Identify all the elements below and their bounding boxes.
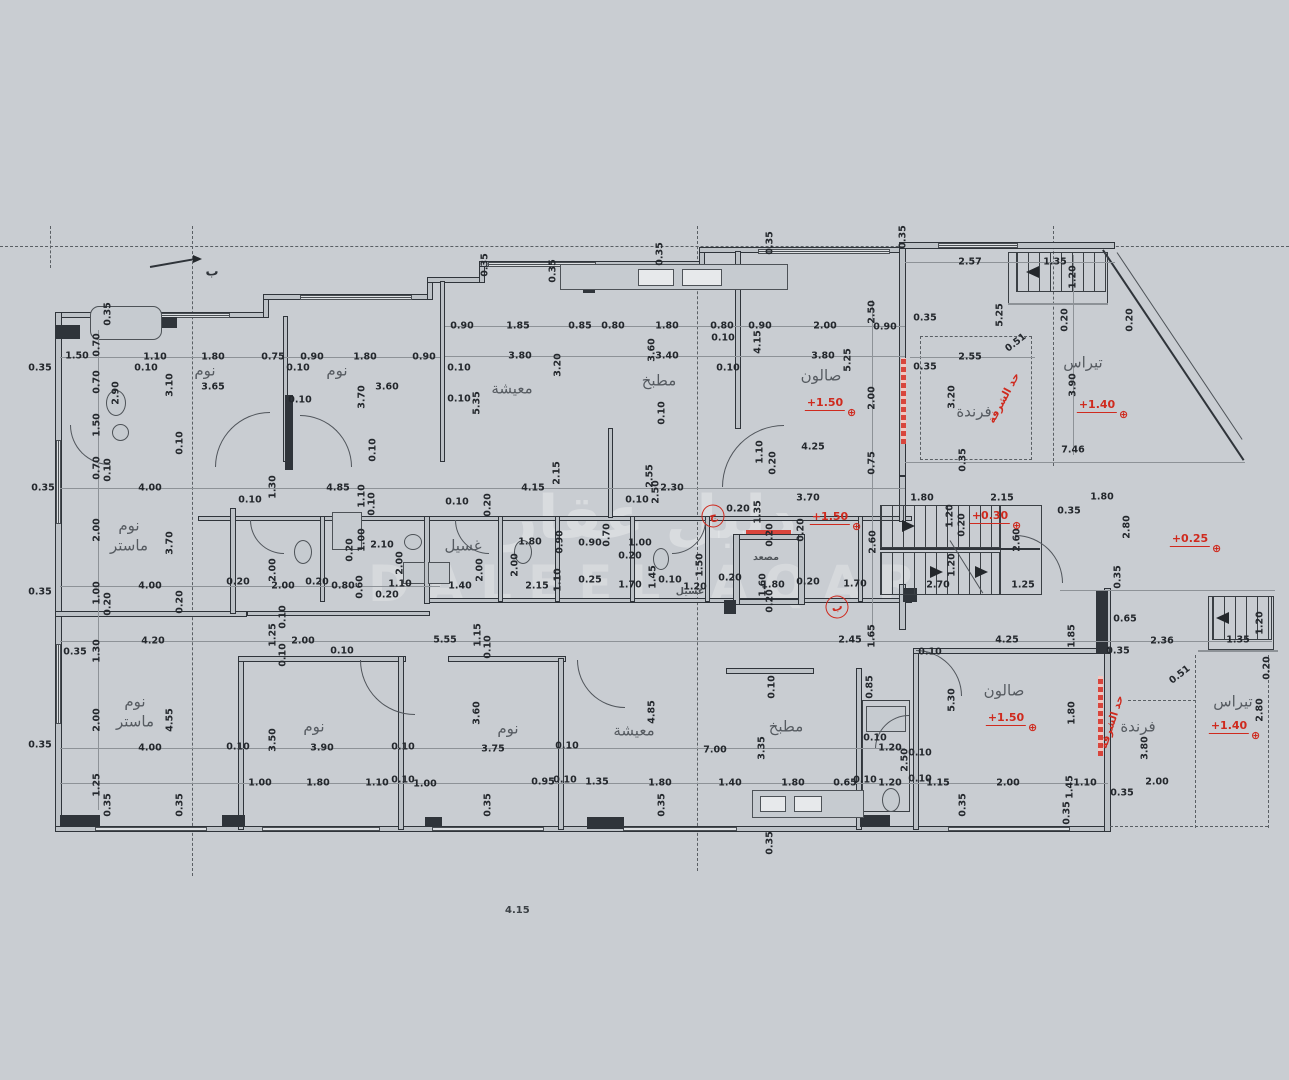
- dimension-label: 0.10: [716, 363, 739, 373]
- window: [758, 249, 890, 254]
- dimension-label: 5.35: [472, 391, 482, 414]
- floor-plan-canvas: دليل عقار DALEEL AQAR ب: [0, 0, 1289, 1080]
- toilet: [294, 540, 312, 564]
- floor-plan: دليل عقار DALEEL AQAR ب: [0, 0, 1289, 1080]
- grid-line: [697, 226, 698, 871]
- dimension-label: 0.10: [391, 775, 414, 785]
- dimension-label: 0.25: [578, 575, 601, 585]
- dimension-label: 0.35: [958, 793, 968, 816]
- dimension-label: 0.35: [655, 242, 665, 265]
- dimension-label: 2.10: [370, 540, 393, 550]
- room-label: نوم ماستر: [116, 693, 154, 732]
- dimension-label: 4.00: [138, 581, 161, 591]
- dimension-label: 0.10: [103, 458, 113, 481]
- grid-line: [1128, 700, 1196, 701]
- wall: [247, 611, 430, 616]
- dimension-label: 0.20: [765, 523, 775, 546]
- dimension-label: 7.00: [703, 745, 726, 755]
- dimension-label: 1.20: [1255, 611, 1265, 634]
- dimension-label: 0.20: [768, 451, 778, 474]
- dimension-label: 0.70: [92, 456, 102, 479]
- dimension-label: 0.10: [175, 431, 185, 454]
- dimension-label: 0.20: [796, 577, 819, 587]
- wall: [913, 648, 1110, 654]
- dimension-line: [1060, 590, 1275, 591]
- basin: [404, 534, 422, 550]
- dimension-label: 1.80: [910, 493, 933, 503]
- column-block: [860, 815, 890, 827]
- dimension-label: 1.35: [1226, 635, 1249, 645]
- dimension-label: 0.10: [226, 742, 249, 752]
- dimension-label: 4.00: [138, 483, 161, 493]
- dimension-label: 0.35: [103, 793, 113, 816]
- dimension-label: 2.50: [867, 300, 877, 323]
- dimension-label: 0.75: [261, 352, 284, 362]
- dimension-label: 4.25: [995, 635, 1018, 645]
- window: [262, 827, 380, 831]
- dimension-label: 1.20: [878, 743, 901, 753]
- dimension-label: 2.60: [868, 530, 878, 553]
- dimension-label: 1.10: [365, 778, 388, 788]
- dimension-label: 1.80: [1090, 492, 1113, 502]
- dimension-label: 0.10: [286, 363, 309, 373]
- wall: [320, 516, 325, 602]
- window: [432, 827, 544, 831]
- dimension-label: 0.35: [958, 448, 968, 471]
- wall: [448, 656, 566, 662]
- dimension-label: 2.15: [552, 461, 562, 484]
- dimension-label: 0.20: [726, 504, 749, 514]
- kitchen-sink: [760, 796, 786, 812]
- dimension-label: 0.35: [548, 259, 558, 282]
- elevation-marker: +1.50: [805, 397, 845, 411]
- dimension-label: 0.35: [1057, 506, 1080, 516]
- scale-note: 4.15: [505, 905, 530, 916]
- dimension-label: 0.10: [657, 401, 667, 424]
- room-label: صالون: [984, 681, 1025, 701]
- dimension-label: 7.46: [1061, 445, 1084, 455]
- dimension-label: 0.35: [483, 793, 493, 816]
- dimension-label: 0.35: [28, 363, 51, 373]
- dimension-label: 2.00: [510, 553, 520, 576]
- dimension-label: 0.80: [601, 321, 624, 331]
- wall: [55, 611, 247, 617]
- dimension-label: 2.00: [92, 518, 102, 541]
- dimension-label: 1.10: [143, 352, 166, 362]
- elevation-marker: +1.50: [810, 511, 850, 525]
- elevation-marker: +0.25: [1170, 533, 1210, 547]
- dimension-label: 3.10: [165, 373, 175, 396]
- dimension-label: 3.70: [357, 385, 367, 408]
- dimension-label: 2.57: [958, 257, 981, 267]
- dimension-label: 1.80: [353, 352, 376, 362]
- dimension-label: 1.40: [718, 778, 741, 788]
- dimension-label: 1.65: [867, 624, 877, 647]
- dimension-label: 2.80: [1255, 698, 1265, 721]
- dimension-label: 1.80: [655, 321, 678, 331]
- wall: [427, 277, 485, 283]
- dimension-label: 3.80: [1140, 736, 1150, 759]
- dimension-label: 1.80: [518, 537, 541, 547]
- dimension-label: 1.35: [585, 777, 608, 787]
- washer: [428, 562, 450, 584]
- dimension-label: 1.20: [1068, 265, 1078, 288]
- dimension-label: 0.35: [898, 225, 908, 248]
- dimension-label: 0.20: [796, 518, 806, 541]
- dimension-label: 1.25: [1011, 580, 1034, 590]
- dimension-label: 0.35: [1113, 565, 1123, 588]
- dimension-label: 0.10: [625, 495, 648, 505]
- dimension-label: 0.35: [913, 362, 936, 372]
- dimension-label: 4.20: [141, 636, 164, 646]
- room-label: نوم ماستر: [110, 517, 148, 556]
- column-block: [55, 325, 80, 339]
- dimension-label: 0.20: [1125, 308, 1135, 331]
- dimension-label: 0.10: [367, 492, 377, 515]
- dimension-label: 0.60: [355, 575, 365, 598]
- dimension-line: [60, 488, 905, 489]
- room-label: نوم: [497, 719, 518, 739]
- grid-line: [50, 226, 51, 268]
- wall: [726, 668, 814, 674]
- dimension-label: 1.00: [92, 581, 102, 604]
- dimension-label: 0.10: [368, 438, 378, 461]
- dimension-label: 1.50: [92, 413, 102, 436]
- elevation-marker: +1.40: [1077, 399, 1117, 413]
- dimension-label: 2.00: [268, 558, 278, 581]
- room-label: صالون: [801, 366, 842, 386]
- kitchen-counter: [560, 264, 788, 290]
- dimension-label: 0.35: [28, 740, 51, 750]
- dimension-label: 0.35: [28, 587, 51, 597]
- dimension-label: 0.20: [345, 538, 355, 561]
- dimension-line: [905, 262, 1115, 263]
- dimension-label: 0.90: [412, 352, 435, 362]
- dimension-label: 0.20: [957, 513, 967, 536]
- dimension-label: 0.10: [711, 333, 734, 343]
- dimension-label: 2.00: [395, 551, 405, 574]
- room-label: مطبخ: [769, 717, 804, 737]
- column-block: [425, 817, 442, 827]
- stairs-direction-arrow: [1216, 612, 1229, 624]
- kitchen-sink: [682, 269, 722, 286]
- wall: [498, 516, 503, 602]
- door-swing-arc: [250, 520, 284, 554]
- dimension-label: 0.10: [853, 775, 876, 785]
- window: [938, 243, 1018, 248]
- window: [300, 295, 412, 300]
- dimension-label: 0.10: [447, 394, 470, 404]
- dimension-label: 0.10: [918, 647, 941, 657]
- dimension-label: 2.00: [813, 321, 836, 331]
- column-block: [285, 395, 293, 470]
- dimension-label: 3.20: [947, 385, 957, 408]
- dimension-label: 3.70: [796, 493, 819, 503]
- dimension-label: 0.10: [278, 605, 288, 628]
- dimension-line: [60, 783, 1108, 784]
- dimension-label: 3.80: [811, 351, 834, 361]
- break-line: [1117, 252, 1243, 440]
- dimension-label: 0.20: [618, 551, 641, 561]
- dimension-label: 0.20: [226, 577, 249, 587]
- dimension-label: 1.85: [1067, 624, 1077, 647]
- dimension-label: 0.20: [103, 592, 113, 615]
- dimension-label: 0.35: [1062, 801, 1072, 824]
- dimension-label: 2.00: [92, 708, 102, 731]
- room-label: نوم: [303, 717, 324, 737]
- dimension-label: 2.00: [996, 778, 1019, 788]
- dimension-label: 2.90: [111, 381, 121, 404]
- room-label: فرندة: [1120, 717, 1155, 737]
- dimension-label: 4.85: [647, 700, 657, 723]
- dimension-label: 2.00: [271, 581, 294, 591]
- dimension-label: 1.80: [781, 778, 804, 788]
- toilet: [882, 788, 900, 812]
- section-letter: ب: [205, 265, 218, 280]
- dimension-label: 0.70: [92, 370, 102, 393]
- dimension-label: 2.15: [525, 581, 548, 591]
- wall: [230, 508, 236, 614]
- window: [623, 827, 737, 831]
- dimension-label: 2.36: [1150, 636, 1173, 646]
- dimension-label: 0.80: [710, 321, 733, 331]
- dimension-label: 0.35: [657, 793, 667, 816]
- dimension-label: 4.55: [165, 708, 175, 731]
- dimension-label: 3.70: [165, 531, 175, 554]
- grid-line: [192, 226, 193, 876]
- dimension-label: 1.25: [92, 773, 102, 796]
- dimension-label: 2.15: [990, 493, 1013, 503]
- dimension-label: 1.45: [648, 565, 658, 588]
- dimension-label: 3.60: [472, 701, 482, 724]
- dimension-label: 2.70: [926, 580, 949, 590]
- dimension-label: 1.00: [248, 778, 271, 788]
- window: [95, 827, 207, 831]
- wall: [424, 516, 430, 604]
- dimension-label: 1.20: [878, 778, 901, 788]
- dimension-label: 3.60: [375, 382, 398, 392]
- door-swing-arc: [577, 660, 625, 708]
- dimension-label: 0.90: [578, 538, 601, 548]
- dimension-label: 1.10: [755, 440, 765, 463]
- window: [948, 827, 1070, 831]
- dimension-label: 2.80: [1122, 515, 1132, 538]
- dimension-label: 0.10: [288, 395, 311, 405]
- dimension-label: 1.30: [92, 639, 102, 662]
- dimension-label: 1.20: [945, 504, 955, 527]
- dimension-label: 0.35: [765, 831, 775, 854]
- dimension-label: 0.85: [865, 675, 875, 698]
- dimension-label: 0.35: [1110, 788, 1133, 798]
- window: [56, 440, 61, 524]
- dimension-label: 1.70: [618, 580, 641, 590]
- wall: [55, 312, 62, 832]
- dimension-label: 4.00: [138, 743, 161, 753]
- dimension-label: 0.35: [103, 302, 113, 325]
- room-label: تيراس: [1213, 692, 1252, 712]
- dimension-label: 0.35: [913, 313, 936, 323]
- dimension-label: 2.45: [838, 635, 861, 645]
- column-block: [60, 815, 100, 827]
- dimension-label: 0.35: [765, 231, 775, 254]
- dimension-label: 5.25: [843, 348, 853, 371]
- dimension-label: 1.40: [448, 581, 471, 591]
- room-label: غسيل: [444, 536, 481, 556]
- diagonal-wall: [1102, 249, 1244, 460]
- dimension-label: 0.20: [1060, 308, 1070, 331]
- dimension-label: 2.00: [291, 636, 314, 646]
- dimension-label: 5.30: [947, 688, 957, 711]
- dimension-label: 5.25: [995, 303, 1005, 326]
- dimension-line: [60, 641, 1272, 642]
- dimension-label: 3.90: [1068, 373, 1078, 396]
- door-swing-arc: [300, 415, 352, 467]
- door-swing-arc: [672, 520, 706, 554]
- stairs-direction-arrow: [902, 520, 915, 532]
- dimension-label: 0.10: [908, 748, 931, 758]
- dimension-label: 3.75: [481, 744, 504, 754]
- dimension-label: 2.00: [1145, 777, 1168, 787]
- wall: [608, 428, 613, 518]
- dimension-label: 1.10: [1073, 778, 1096, 788]
- dimension-label: 4.25: [801, 442, 824, 452]
- room-label: معيشة: [613, 721, 654, 741]
- stairs-direction-arrow: [1026, 266, 1039, 278]
- dimension-label: 3.20: [553, 353, 563, 376]
- room-label: مطبخ: [642, 371, 677, 391]
- dimension-label: 0.10: [278, 643, 288, 666]
- elevation-marker: +1.50: [986, 712, 1026, 726]
- dimension-line: [98, 330, 99, 810]
- dimension-label: 0.35: [175, 793, 185, 816]
- dimension-label: 3.35: [757, 736, 767, 759]
- elevator-wall: [798, 534, 805, 605]
- room-label: مصعد: [753, 552, 779, 564]
- dimension-label: 5.55: [433, 635, 456, 645]
- dimension-label: 2.00: [867, 386, 877, 409]
- dimension-label: 1.35: [753, 500, 763, 523]
- dimension-label: 0.80: [331, 581, 354, 591]
- dimension-label: 1.00: [357, 528, 367, 551]
- grid-line: [1195, 655, 1196, 828]
- kitchen-sink: [638, 269, 674, 286]
- wall: [440, 281, 445, 462]
- dimension-label: 0.20: [718, 573, 741, 583]
- dimension-label: 1.80: [1067, 701, 1077, 724]
- dimension-label: 3.90: [310, 743, 333, 753]
- dimension-label: 1.50: [695, 553, 705, 576]
- grid-line: [1110, 826, 1268, 827]
- stairs-direction-arrow: [930, 566, 943, 578]
- dimension-label: 0.20: [175, 590, 185, 613]
- dimension-label: 0.90: [450, 321, 473, 331]
- dimension-label: 0.85: [568, 321, 591, 331]
- dimension-label: 2.30: [660, 483, 683, 493]
- column-block: [587, 817, 624, 829]
- dimension-label: 0.10: [555, 741, 578, 751]
- dimension-label: 0.20: [305, 577, 328, 587]
- dimension-label: 0.51: [1168, 664, 1192, 686]
- dimension-label: 0.10: [658, 575, 681, 585]
- dimension-label: 3.80: [508, 351, 531, 361]
- dimension-label: 0.10: [238, 495, 261, 505]
- dimension-label: 1.85: [506, 321, 529, 331]
- dimension-label: 1.10: [553, 568, 563, 591]
- dimension-label: 2.00: [475, 558, 485, 581]
- dimension-label: 0.35: [480, 253, 490, 276]
- dimension-label: 1.00: [413, 779, 436, 789]
- dimension-label: 4.85: [326, 483, 349, 493]
- basin: [112, 424, 129, 441]
- kitchen-sink: [794, 796, 822, 812]
- dimension-line: [1008, 303, 1108, 305]
- dimension-label: 4.15: [753, 330, 763, 353]
- dimension-label: 0.35: [63, 647, 86, 657]
- dimension-label: 0.95: [531, 777, 554, 787]
- dimension-label: 0.10: [767, 675, 777, 698]
- room-label: نوم: [194, 361, 215, 381]
- dimension-label: 0.20: [1262, 656, 1272, 679]
- room-label: نوم: [326, 361, 347, 381]
- dimension-label: 1.80: [306, 778, 329, 788]
- dimension-label: 0.35: [31, 483, 54, 493]
- dimension-label: 0.10: [483, 635, 493, 658]
- dimension-label: 0.10: [553, 775, 576, 785]
- dimension-label: 0.75: [867, 451, 877, 474]
- dimension-label: 0.10: [447, 363, 470, 373]
- red-wall-segment: [901, 358, 906, 444]
- dimension-label: 1.30: [268, 475, 278, 498]
- dimension-label: 0.10: [445, 497, 468, 507]
- dimension-line: [905, 462, 1245, 463]
- dimension-label: 1.35: [1043, 257, 1066, 267]
- dimension-label: 0.70: [602, 523, 612, 546]
- dimension-line: [60, 357, 440, 358]
- dimension-label: 0.35: [1106, 646, 1129, 656]
- room-label: معيشة: [491, 379, 532, 399]
- dimension-label: 2.55: [958, 352, 981, 362]
- stairs-direction-arrow: [975, 566, 988, 578]
- dimension-label: 0.20: [483, 493, 493, 516]
- dimension-label: 4.15: [521, 483, 544, 493]
- dimension-label: 0.10: [330, 646, 353, 656]
- door-swing-arc: [360, 660, 415, 715]
- elevator-wall: [733, 534, 740, 605]
- dimension-label: 1.20: [947, 553, 957, 576]
- section-flag-arrow: [193, 255, 202, 263]
- dimension-label: 0.10: [134, 363, 157, 373]
- dimension-label: 0.20: [765, 589, 775, 612]
- dimension-line: [1198, 650, 1278, 652]
- dimension-label: 0.90: [300, 352, 323, 362]
- dimension-label: 0.65: [1113, 614, 1136, 624]
- column-block: [222, 815, 245, 827]
- column-block: [724, 600, 736, 614]
- dimension-label: 1.70: [843, 579, 866, 589]
- dimension-line: [60, 586, 440, 587]
- dimension-label: 3.50: [268, 728, 278, 751]
- door-swing-arc: [215, 412, 270, 467]
- dimension-label: 0.70: [92, 333, 102, 356]
- window: [56, 644, 61, 724]
- dimension-label: 0.20: [375, 590, 398, 600]
- room-label: تيراس: [1063, 353, 1102, 373]
- dimension-label: 1.50: [65, 351, 88, 361]
- elevation-marker: +0.30: [970, 510, 1010, 524]
- dimension-label: 1.15: [926, 778, 949, 788]
- elevation-marker: +1.40: [1209, 720, 1249, 734]
- dimension-label: 0.10: [391, 742, 414, 752]
